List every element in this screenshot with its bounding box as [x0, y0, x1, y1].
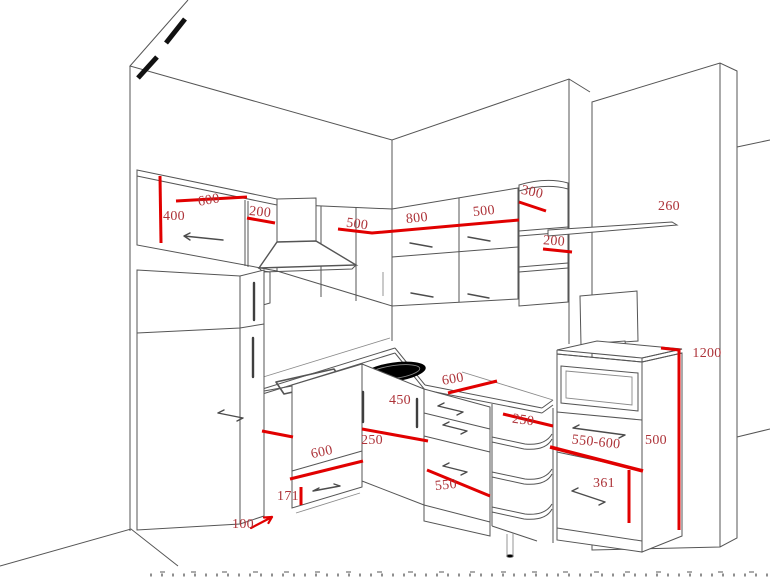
refrigerator — [137, 270, 264, 530]
corner-shelf-unit-upper — [519, 180, 568, 306]
drawer-unit — [424, 389, 490, 536]
kitchen-linework — [0, 0, 770, 578]
corner-shelf-unit-base — [492, 404, 553, 558]
base-cabinets-left — [264, 364, 424, 513]
tall-base-unit — [557, 341, 682, 552]
bottom-tick-strip — [150, 572, 770, 575]
kitchen-dimension-drawing: 4006002005008005003002002601200600450250… — [0, 0, 770, 578]
